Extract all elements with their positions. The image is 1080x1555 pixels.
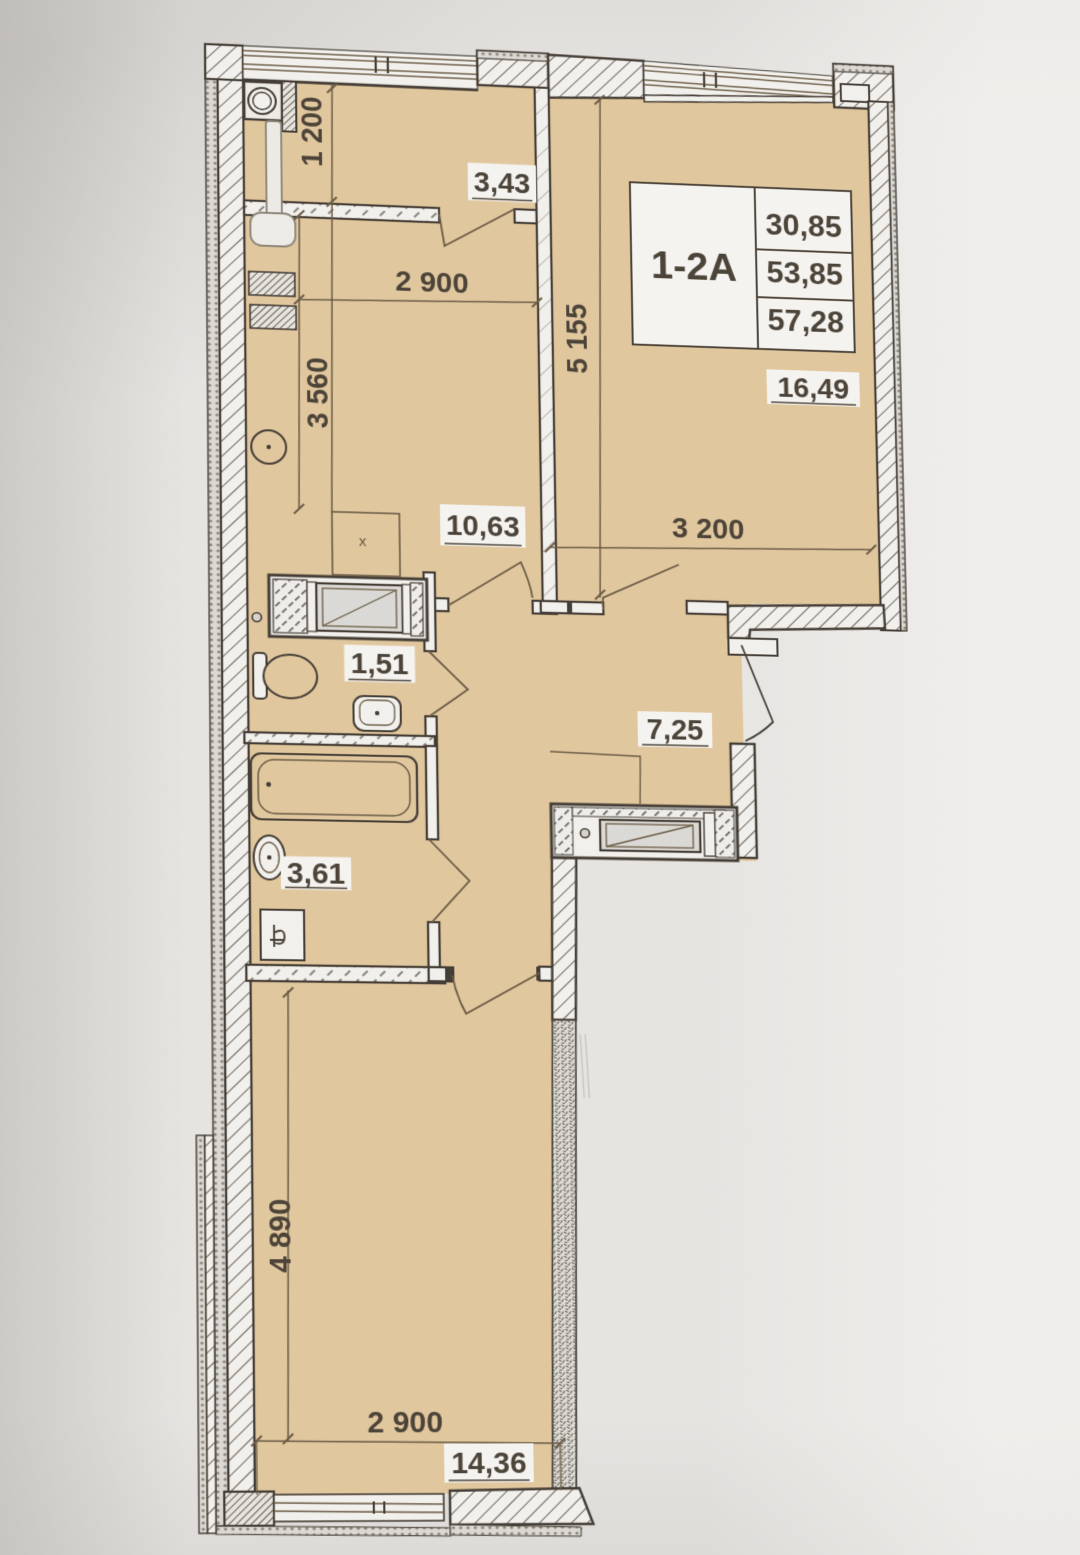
svg-text:3 200: 3 200 bbox=[672, 513, 745, 546]
svg-text:5 155: 5 155 bbox=[561, 303, 594, 374]
svg-text:2 900: 2 900 bbox=[395, 266, 469, 300]
svg-text:3,43: 3,43 bbox=[473, 167, 530, 200]
svg-text:3,61: 3,61 bbox=[287, 858, 346, 891]
svg-text:1 200: 1 200 bbox=[296, 96, 329, 167]
svg-text:x: x bbox=[359, 533, 367, 550]
svg-text:1,51: 1,51 bbox=[351, 648, 409, 681]
svg-text:53,85: 53,85 bbox=[766, 255, 843, 291]
svg-text:16,49: 16,49 bbox=[777, 372, 849, 405]
svg-text:30,85: 30,85 bbox=[765, 208, 842, 244]
svg-text:2 900: 2 900 bbox=[367, 1407, 443, 1440]
svg-text:4 890: 4 890 bbox=[264, 1199, 298, 1273]
svg-text:1-2A: 1-2A bbox=[651, 244, 738, 290]
svg-text:7,25: 7,25 bbox=[646, 714, 703, 747]
svg-text:3 560: 3 560 bbox=[302, 357, 336, 429]
svg-text:14,36: 14,36 bbox=[451, 1447, 527, 1480]
svg-text:57,28: 57,28 bbox=[767, 303, 844, 339]
svg-text:10,63: 10,63 bbox=[446, 510, 520, 544]
